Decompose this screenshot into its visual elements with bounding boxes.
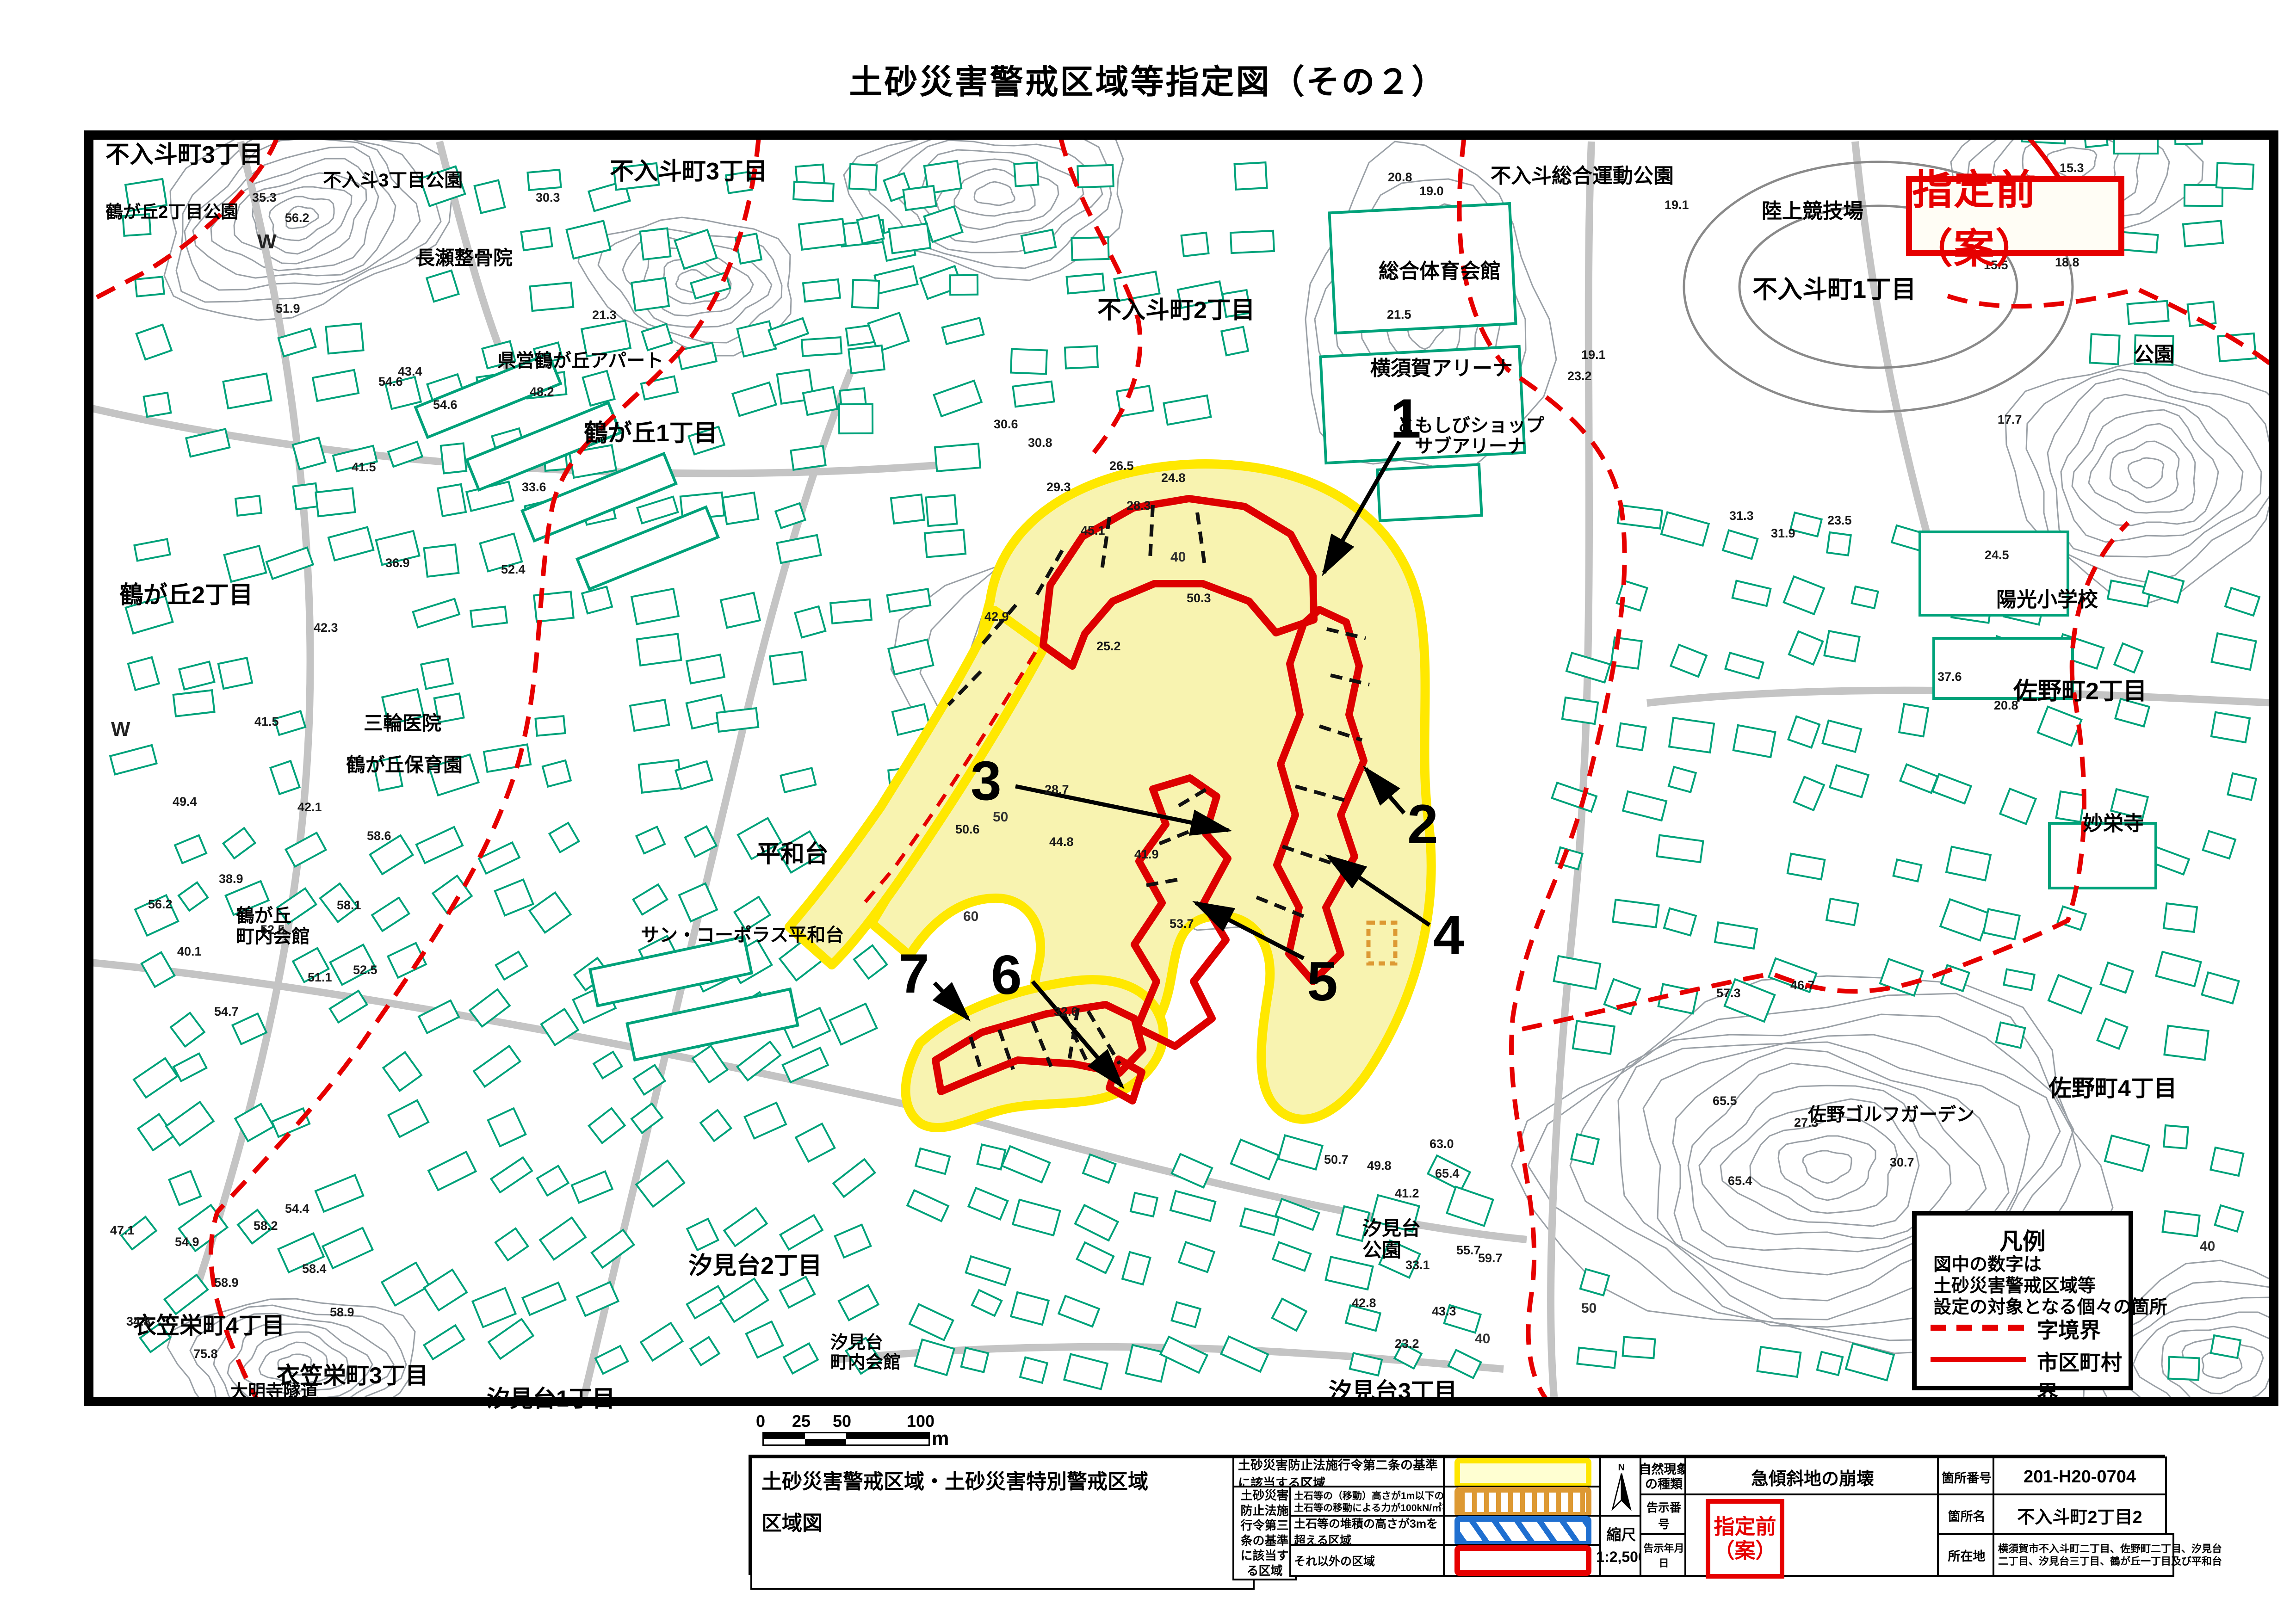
building-outline [631,278,669,310]
swatch-cell-blue [1443,1515,1603,1548]
contour-line [278,1354,312,1375]
building-outline [427,271,458,302]
building-outline [1447,1187,1493,1226]
building-outline [968,1188,1008,1220]
building-outline [903,186,936,210]
building-outline [924,206,963,241]
building-outline [721,593,760,628]
building-outline [1222,290,1250,317]
building-outline [543,760,571,787]
building-outline [2048,975,2091,1013]
contour-line [974,182,1015,205]
building-outline [830,1004,877,1044]
legend-note: 図中の数字は 土砂災害警戒区域等 設定の対象となる個々の箇所 [1933,1254,2167,1318]
building-outline [2115,699,2149,727]
building-outline [1011,1292,1049,1325]
building-outline [2216,163,2253,189]
svg-text:N: N [1618,1462,1625,1473]
building-outline [1830,765,1869,797]
building-outline [1580,1269,1609,1296]
building-outline [179,882,208,911]
subarena-building [1377,464,1481,520]
school-building [1934,638,2073,698]
building-outline [1604,979,1640,1014]
building-outline [784,1344,818,1374]
building-outline [791,446,825,469]
building-outline [2215,1205,2243,1231]
building-outline [690,1337,719,1365]
building-outline [641,1323,682,1360]
building-outline [330,944,375,985]
building-outline [186,429,229,457]
building-outline [128,657,159,690]
building-outline [1723,531,1758,559]
building-outline [1122,1252,1150,1284]
building-outline [495,1228,528,1260]
building-outline [735,897,770,930]
phenomenon-label-cell: 自然現象 の種類 [1640,1456,1688,1497]
building-outline [1160,1337,1207,1373]
contour-line [285,206,318,228]
scale-bar-graphic [762,1432,930,1446]
building-outline [535,716,565,735]
building-outline [803,279,840,302]
building-outline [907,1190,948,1221]
location-label-cell: 所在地 [1937,1533,1996,1577]
building-outline [679,883,717,921]
building-outline [370,835,413,874]
building-outline [780,768,816,792]
building-outline [2098,1019,2128,1049]
building-outline [582,586,612,613]
building-outline [854,945,887,979]
building-outline [413,599,459,628]
building-outline [889,223,931,253]
swatch-cell-yellow [1443,1456,1603,1489]
legend-title: 凡例 [1917,1223,2129,1256]
building-outline [1940,899,1990,940]
building-outline [1852,586,1878,608]
building-outline [777,535,821,563]
building-outline [1172,1154,1212,1187]
building-outline [140,1323,170,1352]
building-outline [2111,789,2148,819]
scale-tick-25: 25 [792,1412,811,1431]
building-outline [126,596,173,634]
building-outline [320,883,358,922]
building-outline [416,827,463,863]
building-outline [1577,1348,1616,1368]
building-outline [1326,1257,1373,1289]
building-outline [631,1104,662,1133]
building-outline [1278,1135,1322,1170]
building-outline [577,1282,619,1316]
building-outline [482,341,515,369]
building-outline [1002,1146,1050,1182]
contour-line [228,1324,372,1404]
scale-tick-0: 0 [756,1412,765,1431]
building-outline [550,823,579,852]
building-outline [1371,1195,1419,1232]
building-outline [594,1052,622,1078]
building-outline [630,700,669,731]
building-outline [134,539,170,561]
building-outline [1733,581,1771,606]
building-outline [523,1283,566,1315]
building-outline [724,1208,767,1246]
building-outline [915,1339,954,1375]
building-outline [1669,718,1714,753]
building-outline [1566,653,1610,683]
building-outline [1231,231,1274,253]
building-outline [2056,791,2085,822]
building-outline [424,544,459,577]
building-outline [916,1148,950,1174]
building-outline [173,1054,206,1081]
building-outline [848,346,885,373]
notice-value-cell: 指定前 （案） [1684,1493,1941,1577]
building-outline [778,832,823,873]
building-outline [830,599,872,623]
building-outline [326,324,363,354]
building-outline [376,531,420,565]
red-zone-swatch [1454,1545,1591,1576]
building-outline [796,1123,835,1161]
building-outline [793,182,834,201]
building-outline [475,180,505,213]
building-outline [1623,791,1666,821]
contour-line [2089,424,2195,513]
apartment-block [467,403,620,490]
building-outline [138,1114,174,1150]
blue-zone-swatch [1454,1516,1591,1547]
building-outline [1664,908,1696,935]
building-outline [1131,1193,1157,1216]
building-outline [2211,1335,2240,1358]
building-outline [488,1108,526,1146]
building-outline [1562,697,1598,724]
zone-leader-arrow [934,983,968,1018]
building-outline [470,607,507,627]
building-outline [1794,777,1824,810]
building-outline [429,754,479,795]
building-outline [373,757,402,790]
building-outline [738,818,781,859]
building-outline [733,383,776,416]
building-outline [293,483,319,509]
hazard-map-sheet: 土砂災害警戒区域等指定図（その２） [0,0,2296,1623]
building-outline [313,370,359,401]
building-outline [770,652,806,685]
north-arrow-icon: N [1608,1462,1635,1513]
building-outline [1899,704,1928,736]
building-outline [2168,1357,2199,1380]
notice-no-label-cell: 告示番号 [1640,1493,1688,1537]
building-outline [795,606,825,637]
building-outline [835,1225,871,1258]
building-outline [484,744,531,771]
site-name-label-cell: 箇所名 [1937,1493,1996,1537]
building-outline [891,494,924,523]
building-outline [1231,1140,1279,1179]
building-outline [631,589,679,624]
swatch-cell-orange [1443,1486,1603,1518]
phenomenon-value-cell: 急傾斜地の崩壊 [1684,1456,1941,1497]
building-outline [1827,532,1850,555]
building-outline [675,761,712,789]
criteria-sub1-cell: 土石等の（移動）高さが1m以下の場合、 土石等の移動による力が100kN/㎡を超… [1289,1486,1452,1518]
municipal-boundary-label: 市区町村界 [2037,1346,2129,1407]
building-outline [839,1285,879,1320]
building-outline [1725,979,1775,1022]
building-outline [2218,52,2249,74]
building-outline [633,884,668,914]
building-outline [2163,1211,2200,1236]
building-outline [2156,952,2201,986]
building-outline [123,214,151,236]
building-outline [2127,301,2168,324]
warning-zone-swatch [1454,1458,1591,1488]
building-outline [385,377,421,409]
building-outline [1758,1347,1801,1377]
building-outline [2228,773,2256,800]
building-outline [2164,1125,2188,1148]
building-outline [424,1270,467,1310]
building-outline [693,1046,727,1082]
building-outline [2044,62,2071,90]
building-outline [144,393,171,417]
scale-label: 縮尺 [1606,1524,1636,1546]
building-outline [1996,1023,2025,1048]
building-outline [421,659,453,689]
contour-line [1778,1136,1875,1200]
sheet-title-cell: 土砂災害警戒区域・土砂災害特別警戒区域 区域図 [750,1456,1255,1590]
orange-zone-swatch [1454,1487,1591,1518]
pre-designation-stamp: 指定前（案） [1906,176,2124,256]
building-outline [134,1058,177,1098]
building-outline [1077,165,1113,187]
building-outline [1346,1305,1380,1331]
building-outline [316,488,355,517]
building-outline [857,215,884,243]
building-outline [166,1102,214,1145]
scale-unit: m [932,1427,949,1450]
building-outline [521,228,552,250]
building-outline [2225,588,2259,616]
building-outline [1715,922,1757,948]
building-outline [1075,1205,1118,1240]
contour-line [190,1305,406,1427]
building-outline [540,1217,586,1259]
article2-criteria-cell: 土砂災害防止法施行令第二条の基準に該当する区域 [1232,1456,1454,1489]
building-outline [2120,56,2148,79]
building-outline [235,496,261,516]
building-outline [582,321,631,356]
school-building [1920,532,2068,615]
building-outline [614,163,659,190]
building-outline [277,889,316,924]
building-outline [839,404,873,433]
building-outline [1179,1242,1214,1272]
building-outline [780,1277,815,1308]
criteria-sub2-cell: 土石等の堆積の高さが3mを超える区域 [1289,1515,1452,1548]
building-outline [1941,965,1969,991]
building-outline [1221,1337,1268,1372]
building-outline [1669,767,1696,792]
building-outline [474,1046,520,1086]
aza-boundary-label: 字境界 [2037,1314,2101,1344]
building-outline [799,219,846,249]
building-outline [637,634,681,665]
building-outline [135,895,178,935]
building-outline [383,1052,421,1091]
sheet-title-line2: 区域図 [761,1506,823,1536]
building-outline [723,493,758,524]
building-outline [2091,63,2118,86]
building-outline [961,1348,988,1372]
building-outline [472,1288,515,1327]
building-outline [2164,1026,2208,1060]
building-outline [1064,1354,1108,1389]
building-outline [802,337,842,356]
building-outline [910,1304,953,1340]
building-outline [372,898,409,931]
building-outline [780,1215,823,1249]
building-outline [567,221,611,259]
building-outline [1613,900,1659,927]
building-outline [1826,899,1858,925]
building-outline [595,1346,628,1374]
building-outline [1172,1302,1201,1327]
building-outline [480,534,522,572]
building-outline [1013,1200,1060,1235]
scale-tick-50: 50 [833,1412,851,1431]
building-outline [1894,859,1922,881]
temple-building [2049,823,2156,888]
building-outline [1823,721,1862,752]
building-outline [238,1210,272,1244]
building-outline [1067,274,1104,294]
building-outline [1380,1240,1420,1277]
building-outline [1013,382,1054,407]
building-outline [438,484,466,516]
building-outline [173,690,215,716]
building-outline [1846,1344,1894,1381]
building-outline [589,1108,625,1143]
building-outline [491,1157,532,1192]
building-outline [316,1175,363,1212]
building-outline [700,1110,731,1141]
contour-line [2128,458,2164,488]
site-no-value-cell: 201-H20-0704 [1993,1456,2167,1497]
building-outline [1657,835,1703,862]
building-outline [2135,335,2173,365]
building-outline [849,164,877,190]
building-outline [689,427,724,455]
swatch-cell-red [1443,1544,1603,1577]
building-outline [135,277,164,296]
building-outline [1571,1134,1598,1164]
building-outline [1182,233,1209,256]
building-outline [1014,162,1038,186]
building-outline [1789,716,1820,748]
building-outline [2090,334,2119,364]
building-outline [441,443,466,473]
building-outline [1444,1305,1481,1333]
building-outline [271,761,300,794]
building-outline [424,1325,464,1359]
scale-value: 1:2,500 [1596,1546,1646,1568]
stamp-line1: 指定前 [1714,1515,1776,1538]
contour-line [167,1299,415,1442]
contour-line [1803,1151,1851,1183]
building-outline [1900,765,1937,793]
building-outline [2004,969,2034,990]
building-outline [1784,576,1824,614]
building-outline [1617,723,1646,750]
building-outline [934,381,982,416]
building-outline [2000,789,2036,824]
building-outline [1240,1209,1279,1235]
building-outline [926,495,957,526]
building-outline [717,708,758,732]
building-outline [541,1009,578,1045]
building-outline [489,1319,533,1359]
building-outline [389,1100,429,1137]
building-outline [1235,162,1267,190]
building-outline [142,952,174,987]
info-table: 土砂災害警戒区域・土砂災害特別警戒区域 区域図 土砂災害防止法施行令第二条の基準… [749,1455,2165,1575]
building-outline [218,658,252,689]
building-outline [2105,1135,2149,1171]
building-outline [224,546,266,582]
building-outline [2114,643,2142,673]
building-outline [1725,653,1763,679]
building-outline [1788,854,1825,880]
building-outline [935,444,980,471]
stamp-line2: （案） [1714,1539,1776,1562]
building-outline [223,374,272,408]
building-outline [1733,725,1776,757]
building-outline [1011,349,1047,374]
gym-building [1329,204,1516,333]
building-outline [687,1286,726,1318]
building-outline [1065,346,1098,368]
building-outline [165,1275,208,1314]
scale-tick-100: 100 [907,1412,934,1431]
site-name-value-cell: 不入斗町2丁目2 [1993,1493,2167,1537]
notice-date-label-cell: 告示年月日 [1640,1533,1688,1577]
building-outline [687,655,724,684]
legend-box: 凡例 図中の数字は 土砂災害警戒区域等 設定の対象となる個々の箇所 字境界 市区… [1912,1211,2133,1390]
building-outline [745,1103,786,1138]
building-outline [428,1152,476,1190]
building-outline [687,1219,718,1250]
contour-line [164,117,452,320]
building-outline [171,1013,204,1047]
building-outline [1789,631,1823,665]
building-outline [382,689,423,724]
building-outline [272,1108,309,1137]
building-outline [737,321,776,357]
building-outline [496,952,527,980]
building-outline [110,745,156,774]
building-outline [1273,1242,1311,1271]
building-outline [382,1263,429,1306]
building-outline [1020,1358,1047,1383]
building-outline [1170,1191,1215,1221]
contour-line [2061,395,2243,542]
